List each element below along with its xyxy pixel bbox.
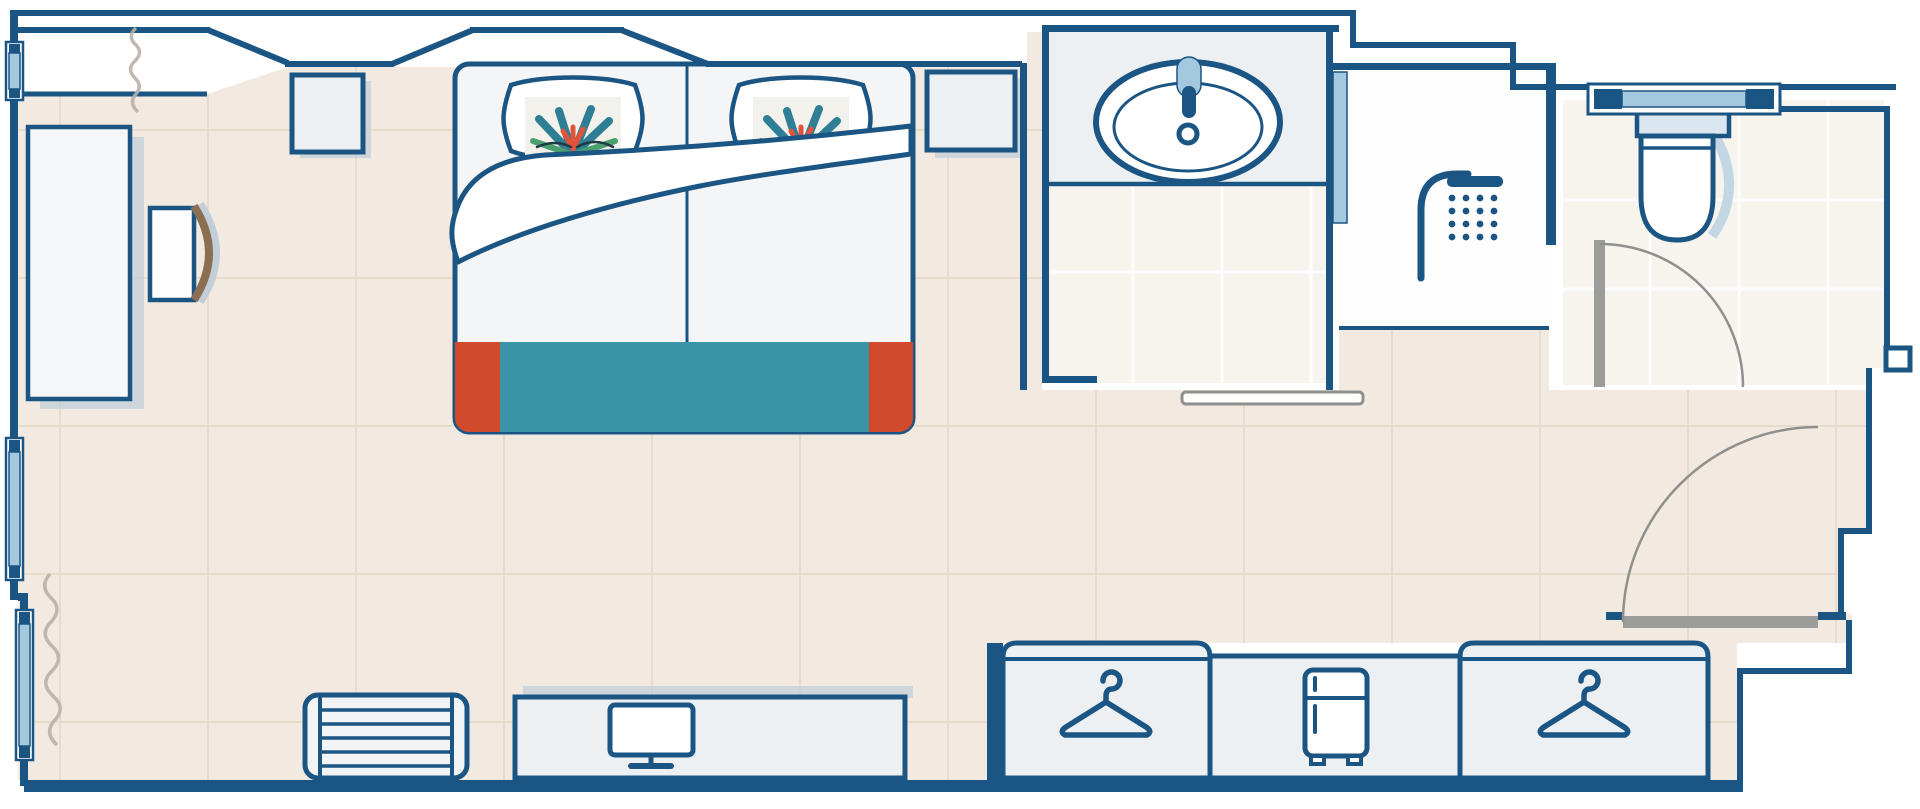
washbasin-icon [1096,57,1280,182]
bathroom-room [1049,32,1326,383]
nightstand-left [292,75,363,152]
wardrobe-right [1460,643,1708,778]
floorplan-canvas: Hotel room floor plan [0,0,1920,809]
window-left-top [6,42,23,100]
fridge-icon [1305,670,1367,764]
double-bed [452,64,913,432]
pillow-left [504,78,643,161]
desk [28,127,130,399]
luggage-rack [305,695,467,778]
floorplan-svg: Hotel room floor plan [0,0,1920,809]
sliding-door [1182,392,1363,404]
toilet-room [1563,100,1884,385]
window-toilet [1588,84,1780,114]
nightstand-right [927,72,1015,150]
window-left-mid [6,438,23,580]
shower-glass-panel [1333,72,1347,223]
wardrobe-left [1003,643,1210,778]
wardrobe-row [987,643,1708,780]
minibar-alcove [1210,656,1460,778]
tv-console [515,697,905,778]
bed-runner [455,342,913,432]
shower-room [1339,70,1546,330]
window-left-low [16,610,33,760]
